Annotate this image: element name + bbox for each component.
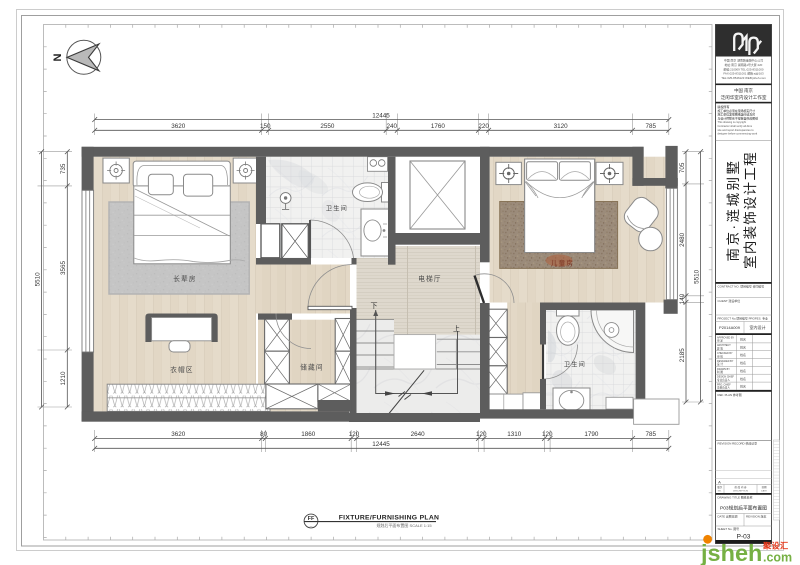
svg-text:1790: 1790 [584,431,599,438]
svg-text:REF. PLAN 参考图: REF. PLAN 参考图 [718,392,742,397]
svg-text:220: 220 [478,123,489,130]
svg-text:120: 120 [349,431,360,438]
svg-text:储藏间: 储藏间 [300,363,323,372]
svg-text:SHEET No. 图号: SHEET No. 图号 [718,526,740,531]
svg-text:2550: 2550 [320,123,335,130]
svg-text:规划后平面布置图 SCALE 1:15: 规划后平面布置图 SCALE 1:15 [376,522,432,528]
svg-text:DATE: DATE [761,490,767,493]
svg-text:3565: 3565 [60,261,67,276]
svg-text:版次: 版次 [717,485,723,489]
svg-text:电梯厅: 电梯厅 [418,274,441,283]
svg-text:735: 735 [60,163,67,174]
svg-text:DRAWING TITLE 图纸名称: DRAWING TITLE 图纸名称 [718,495,753,500]
svg-text:建 筑: 建 筑 [717,347,723,351]
svg-text:P03规划后平面布置图: P03规划后平面布置图 [720,505,767,512]
svg-text:120: 120 [476,431,487,438]
svg-text:审 定: 审 定 [717,339,723,343]
svg-text:.com: .com [763,551,792,565]
svg-text:1760: 1760 [431,123,446,130]
svg-text:Contractor shall verify all di: Contractor shall verify all dims [718,124,753,128]
svg-text:REVISION 版本: REVISION 版本 [746,514,767,519]
svg-text:NO.: NO. [718,491,722,493]
svg-text:DATE 出图日期: DATE 出图日期 [718,514,738,519]
svg-text:5510: 5510 [693,269,700,284]
svg-text:TEL:025-8546123 WEB:jsheh.com: TEL:025-8546123 WEB:jsheh.com [721,76,766,80]
svg-text:设 计: 设 计 [717,362,723,366]
svg-text:FAX:025-8311001 邮箱:sj@163: FAX:025-8311001 邮箱:sj@163 [723,71,764,76]
svg-text:姓名: 姓名 [740,360,746,365]
svg-text:N: N [52,53,64,61]
svg-text:专业负责人: 专业负责人 [717,378,730,382]
svg-text:1860: 1860 [301,431,316,438]
svg-text:785: 785 [645,431,656,438]
svg-text:1210: 1210 [60,371,67,386]
svg-text:120: 120 [542,431,553,438]
svg-text:CLIENT 建设单位: CLIENT 建设单位 [718,298,741,303]
svg-text:姓名: 姓名 [740,344,746,349]
svg-text:姓名: 姓名 [740,384,746,389]
svg-text:12445: 12445 [372,112,390,119]
svg-text:与设计师联系不得擅自修改图纸: 与设计师联系不得擅自修改图纸 [718,115,759,120]
svg-text:P2014A009: P2014A009 [719,325,741,330]
svg-text:240: 240 [387,123,398,130]
svg-text:卫生间: 卫生间 [564,361,586,369]
svg-text:--: -- [310,524,313,529]
svg-text:DESCRIPTION: DESCRIPTION [733,491,748,493]
svg-text:邮编:210009 TEL:025-8311000: 邮编:210009 TEL:025-8311000 [724,66,764,71]
svg-text:785: 785 [645,123,656,130]
svg-text:姓名: 姓名 [740,352,746,357]
svg-text:705: 705 [679,162,686,173]
svg-text:聚设汇: 聚设汇 [762,541,788,551]
svg-text:3620: 3620 [171,431,186,438]
svg-text:上: 上 [453,324,460,333]
svg-text:审 核: 审 核 [717,354,723,358]
svg-text:修 改 内 容: 修 改 内 容 [734,485,747,489]
svg-text:CONTRACT NO. 项目编号 合同编号: CONTRACT NO. 项目编号 合同编号 [718,284,765,289]
svg-text:项目负责人: 项目负责人 [717,386,730,390]
svg-text:中国 南京 湖南路金融中心公司: 中国 南京 湖南路金融中心公司 [724,58,763,63]
svg-text:jsheh: jsheh [700,540,762,565]
svg-text:150: 150 [260,123,271,130]
svg-text:地址:南京 湖南路1号大厦 22F: 地址:南京 湖南路1号大厦 22F [725,62,763,67]
svg-text:室内设计: 室内设计 [750,324,766,330]
svg-text:姓名: 姓名 [740,376,746,381]
svg-text:儿童房: 儿童房 [551,259,574,268]
svg-text:南京·涟城别墅: 南京·涟城别墅 [726,159,741,262]
svg-text:2185: 2185 [679,348,686,363]
svg-text:姓名: 姓名 [740,337,746,342]
svg-text:室内装饰设计工程: 室内装饰设计工程 [742,151,758,269]
svg-text:日期: 日期 [761,485,767,489]
svg-text:制 图: 制 图 [717,370,723,374]
svg-text:5510: 5510 [34,272,41,287]
svg-text:This drawing is copyright: This drawing is copyright [718,120,747,124]
svg-text:3120: 3120 [554,123,569,130]
svg-text:泛闲华室内设计工作室: 泛闲华室内设计工作室 [721,94,767,101]
svg-text:下: 下 [371,302,378,310]
svg-text:1310: 1310 [507,431,522,438]
svg-text:site and report discrepancies: site and report discrepancies to [718,128,755,132]
svg-text:卫生间: 卫生间 [326,205,348,213]
svg-text:A: A [718,480,721,485]
svg-text:140: 140 [679,293,686,304]
svg-text:长辈房: 长辈房 [173,274,196,283]
svg-text:PROJECT No.项目编号 PROFES. 专业: PROJECT No.项目编号 PROFES. 专业 [718,316,768,321]
svg-text:2640: 2640 [411,431,426,438]
svg-text:中国 南京: 中国 南京 [734,87,753,94]
svg-text:姓名: 姓名 [740,368,746,373]
svg-text:3620: 3620 [171,123,186,130]
svg-text:80: 80 [260,431,268,438]
svg-text:FF: FF [308,516,315,522]
svg-text:designer before commencing wor: designer before commencing work [718,132,758,136]
svg-text:REVISION RECORD 修改记录: REVISION RECORD 修改记录 [718,441,758,446]
svg-text:FIXTURE/FURNISHING PLAN: FIXTURE/FURNISHING PLAN [339,515,440,522]
svg-text:2480: 2480 [679,232,686,247]
svg-text:衣帽区: 衣帽区 [170,365,193,374]
svg-text:12445: 12445 [372,441,390,448]
